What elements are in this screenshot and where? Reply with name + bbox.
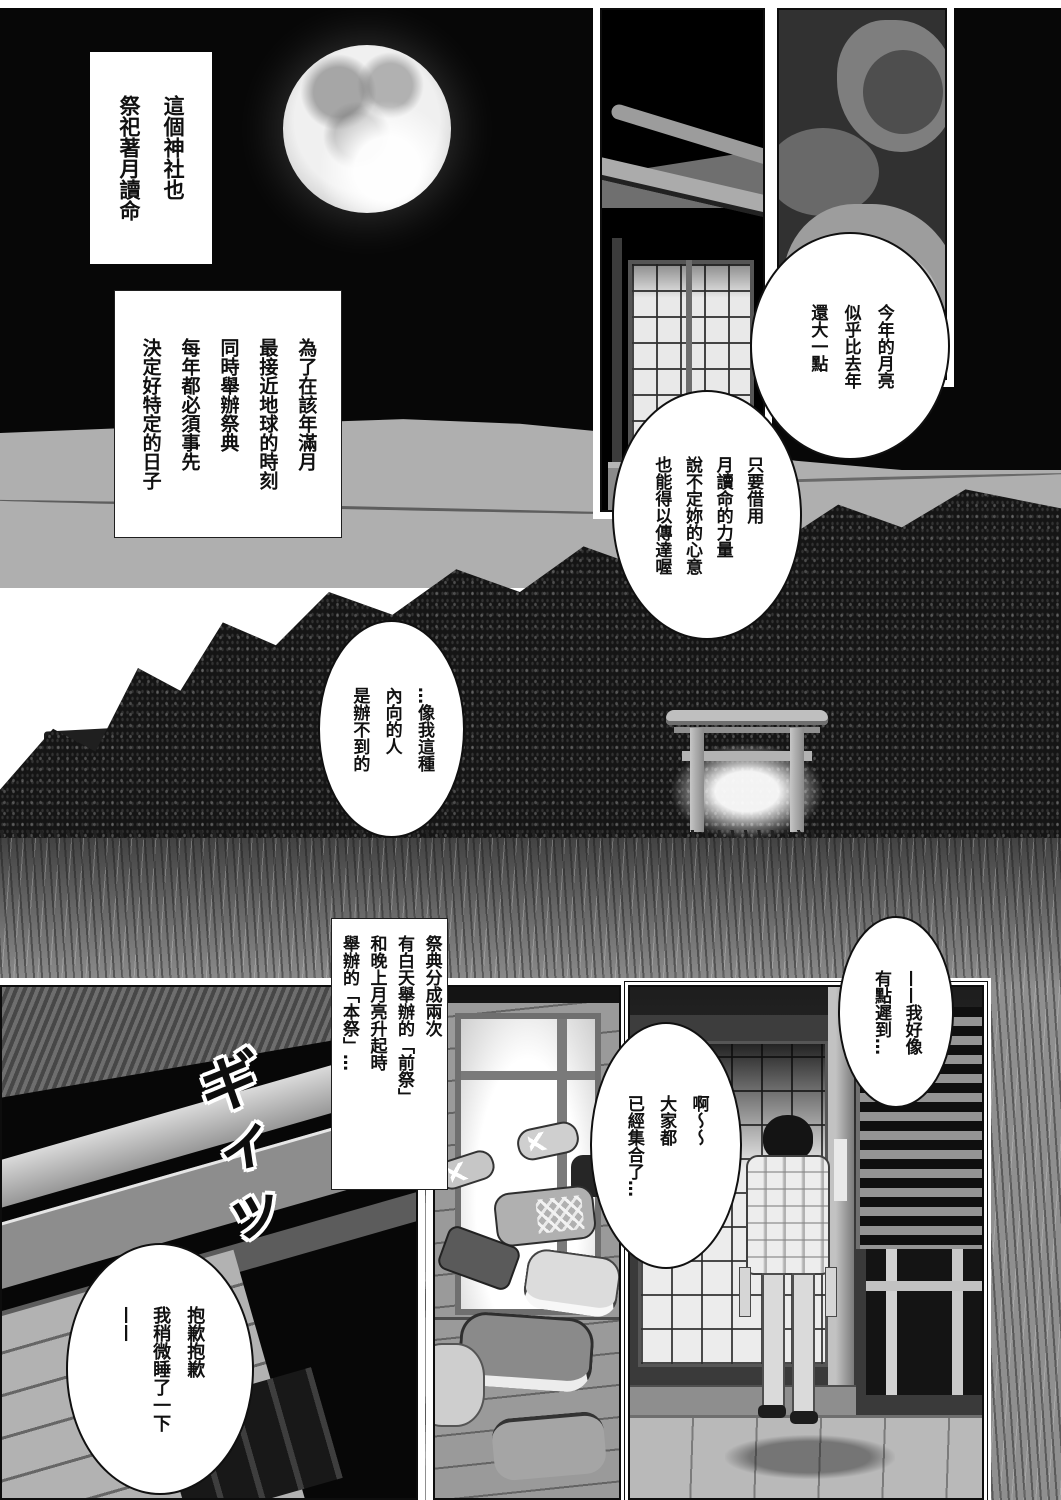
speech-text: 今年的月亮 似乎比去年 還大一點 bbox=[800, 304, 899, 389]
speech-text: …像我這種 內向的人 是辦不到的 bbox=[343, 687, 440, 772]
speech-bubble-sorry-napped: 抱歉抱歉 我稍微睡了一下 —— bbox=[66, 1243, 254, 1495]
speech-bubble-moon-bigger: 今年的月亮 似乎比去年 還大一點 bbox=[750, 232, 950, 460]
left-leg bbox=[762, 1273, 785, 1407]
left-arm bbox=[739, 1267, 751, 1317]
panel-entryway-shoes bbox=[433, 985, 621, 1500]
narration-box-3: 祭典分成兩次 有白天舉辦的「前祭」 和晚上月亮升起時 舉辦的「本祭」… bbox=[331, 918, 448, 1190]
left-shoe bbox=[758, 1405, 786, 1418]
full-moon bbox=[283, 45, 451, 213]
torii-top-lintel bbox=[666, 710, 828, 725]
speech-text: ——我好像 有點遲到… bbox=[865, 970, 926, 1055]
narration-text-1: 這個神社也 祭祀著月讀命 bbox=[107, 95, 195, 221]
narration-text-3: 祭典分成兩次 有白天舉辦的「前祭」 和晚上月亮升起時 舉辦的「本祭」… bbox=[334, 935, 444, 1105]
narration-box-1: 這個神社也 祭祀著月讀命 bbox=[90, 52, 212, 264]
speech-text: 啊～～ 大家都 已經集合了… bbox=[618, 1095, 715, 1197]
right-shoe bbox=[790, 1411, 818, 1424]
narration-text-2: 為了在該年滿月 最接近地球的時刻 同時舉辦祭典 每年都必須事先 決定好特定的日子 bbox=[131, 338, 326, 490]
torii-right-post bbox=[790, 728, 804, 832]
speech-bubble-introvert: …像我這種 內向的人 是辦不到的 bbox=[318, 620, 465, 838]
speech-bubble-everyone-gathered: 啊～～ 大家都 已經集合了… bbox=[590, 1022, 742, 1269]
pale-shoe bbox=[433, 1343, 485, 1427]
right-leg bbox=[792, 1273, 815, 1413]
plaid-shirt bbox=[746, 1155, 830, 1275]
speech-text: 只要借用 月讀命的力量 說不定妳的心意 也能得以傳達喔 bbox=[646, 456, 768, 575]
narration-box-2: 為了在該年滿月 最接近地球的時刻 同時舉辦祭典 每年都必須事先 決定好特定的日子 bbox=[114, 290, 342, 538]
entry-lintel bbox=[435, 987, 619, 1003]
cloud-shadow bbox=[863, 50, 943, 134]
cloud bbox=[777, 128, 879, 216]
porch-post bbox=[952, 1249, 963, 1395]
porch-underside bbox=[866, 1249, 984, 1395]
boy-back-view bbox=[740, 1115, 836, 1445]
shoe-partial bbox=[491, 1410, 608, 1482]
speech-text: 抱歉抱歉 我稍微睡了一下 —— bbox=[109, 1306, 212, 1432]
torii-left-post bbox=[690, 728, 704, 832]
manga-page: 這個神社也 祭祀著月讀命 為了在該年滿月 最接近地球的時刻 同時舉辦祭典 每年都… bbox=[0, 0, 1061, 1500]
door-beam bbox=[461, 1071, 595, 1080]
speech-bubble-late: ——我好像 有點遲到… bbox=[838, 916, 954, 1108]
light-speck bbox=[62, 696, 65, 699]
sandal-strap bbox=[447, 1159, 477, 1184]
sandal-strap bbox=[527, 1130, 556, 1153]
porch-rail bbox=[866, 1281, 984, 1291]
shoe-laces bbox=[535, 1195, 584, 1234]
torii-gate bbox=[666, 704, 828, 846]
right-arm bbox=[825, 1267, 837, 1317]
sneaker bbox=[492, 1184, 597, 1248]
building-post bbox=[612, 238, 622, 490]
speech-bubble-tsukuyomi-power: 只要借用 月讀命的力量 說不定妳的心意 也能得以傳達喔 bbox=[612, 390, 802, 640]
porch-post bbox=[886, 1249, 897, 1395]
